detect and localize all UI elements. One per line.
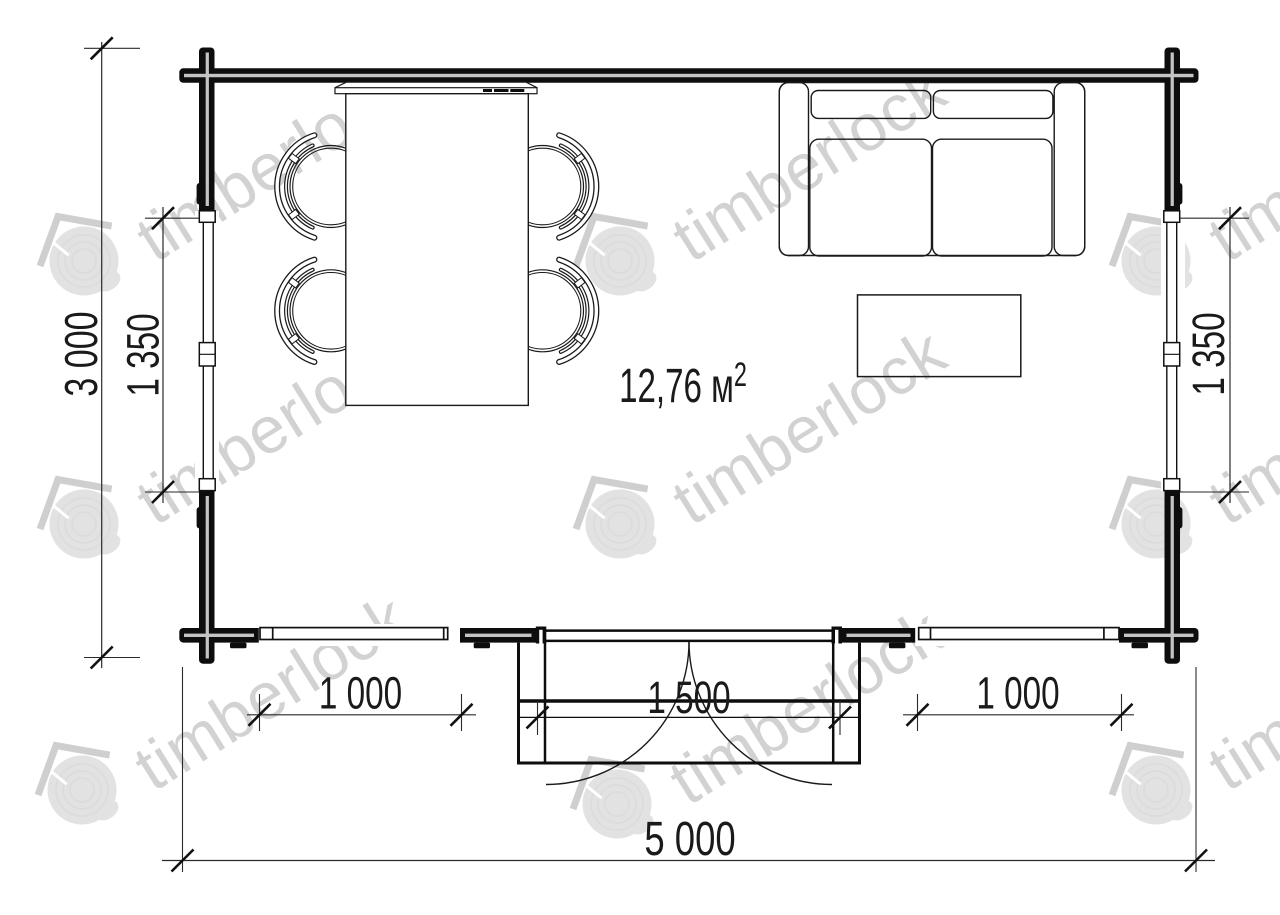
svg-text:1 000: 1 000 [319,669,402,719]
svg-text:12,76 м2: 12,76 м2 [619,357,747,413]
svg-text:1 350: 1 350 [1184,312,1234,395]
svg-text:1 350: 1 350 [119,313,169,396]
svg-text:1 000: 1 000 [976,669,1059,719]
svg-text:1 500: 1 500 [647,673,730,723]
svg-text:5 000: 5 000 [644,812,735,866]
svg-text:3 000: 3 000 [55,311,107,396]
